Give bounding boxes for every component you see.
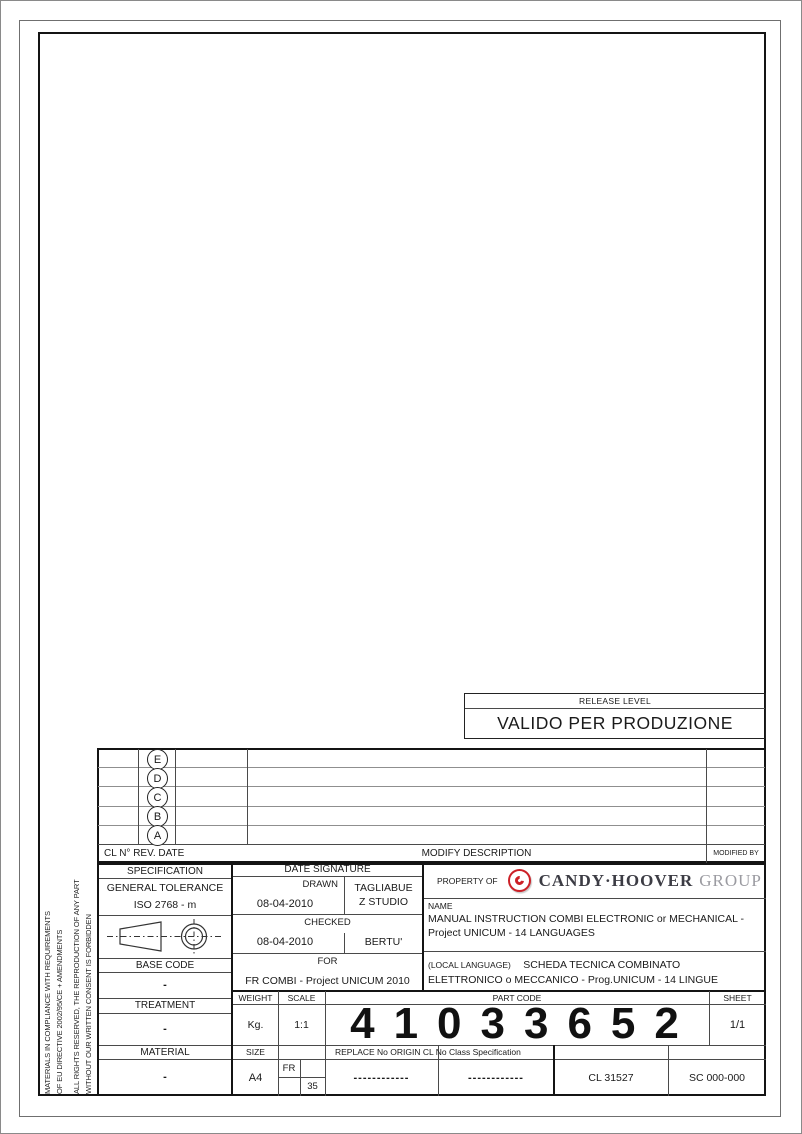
drawn-signature-line2: Z STUDIO — [359, 895, 408, 909]
compliance-line: MATERIALS IN COMPLIANCE WITH REQUIREMENT… — [42, 858, 54, 1094]
cl-class-value: CL 31527 — [554, 1059, 668, 1096]
sc-specification-value: SC 000-000 — [668, 1059, 766, 1096]
material-label: MATERIAL — [99, 1045, 231, 1059]
compliance-note: MATERIALS IN COMPLIANCE WITH REQUIREMENT… — [42, 858, 96, 1094]
revision-letter-c: C — [147, 787, 168, 808]
local-line1: SCHEDA TECNICA COMBINATO — [523, 959, 680, 971]
weight-value: Kg. — [233, 1004, 278, 1045]
compliance-line: WITHOUT OUR WRITTEN CONSENT IS FORBIDDEN — [83, 858, 95, 1094]
size-value: A4 — [233, 1059, 278, 1096]
for-label: FOR — [233, 955, 422, 968]
drawing-sheet: MATERIALS IN COMPLIANCE WITH REQUIREMENT… — [0, 0, 802, 1134]
revision-header-right: MODIFIED BY — [706, 844, 766, 863]
checked-signature: BERTU' — [345, 933, 422, 951]
size-label: SIZE — [233, 1045, 278, 1059]
name-cell: NAME MANUAL INSTRUCTION COMBI ELECTRONIC… — [424, 898, 764, 951]
drawn-signature: TAGLIABUE Z STUDIO — [345, 878, 422, 912]
revision-letter-b: B — [147, 806, 168, 827]
property-of-label: PROPERTY OF — [424, 876, 498, 886]
fr-label: FR — [278, 1059, 300, 1077]
replace-origin-label: REPLACE No ORIGIN CL No Class Specificat… — [335, 1045, 665, 1059]
base-code-label: BASE CODE — [99, 958, 231, 972]
replace-value: ------------ — [325, 1059, 438, 1096]
sheet-value: 1/1 — [709, 1004, 766, 1045]
scale-label: SCALE — [278, 991, 325, 1004]
fr-number: 35 — [300, 1077, 325, 1096]
date-signature-header: DATE SIGNATURE — [233, 863, 422, 876]
part-code-value: 41033652 — [325, 1003, 709, 1045]
revision-letter-e: E — [147, 749, 168, 770]
projection-symbol-cell — [99, 915, 231, 958]
origin-value: ------------ — [438, 1059, 554, 1096]
release-level-value: VALIDO PER PRODUZIONE — [464, 709, 766, 738]
property-row: PROPERTY OF CANDY·HOOVER GROUP — [424, 863, 764, 898]
general-tolerance-value: ISO 2768 - m — [134, 897, 196, 914]
scale-value: 1:1 — [278, 1004, 325, 1045]
name-line1: MANUAL INSTRUCTION COMBI ELECTRONIC or M… — [428, 913, 764, 927]
checked-date: 08-04-2010 — [235, 933, 335, 951]
sheet-label: SHEET — [709, 991, 766, 1004]
compliance-line: OF EU DIRECTIVE 2002/95/CE + AMENDMENTS — [54, 858, 66, 1094]
local-line2: ELETTRONICO o MECCANICO - Prog.UNICUM - … — [428, 973, 764, 988]
first-angle-projection-icon — [101, 916, 229, 957]
base-code-value: - — [99, 972, 231, 998]
release-level-label: RELEASE LEVEL — [464, 693, 766, 708]
revision-letter-d: D — [147, 768, 168, 789]
name-line2: Project UNICUM - 14 LANGUAGES — [428, 927, 764, 941]
drawn-date: 08-04-2010 — [235, 895, 335, 912]
general-tolerance-cell: GENERAL TOLERANCE ISO 2768 - m — [99, 878, 231, 915]
weight-label: WEIGHT — [233, 991, 278, 1004]
drawn-label: DRAWN — [233, 878, 340, 891]
specification-label: SPECIFICATION — [99, 865, 231, 878]
revision-header-left: CL N° REV. DATE — [104, 844, 247, 863]
candy-c-glyph — [513, 874, 526, 887]
brand-group: GROUP — [699, 871, 762, 891]
local-language-cell: (LOCAL LANGUAGE) SCHEDA TECNICA COMBINAT… — [424, 951, 764, 991]
name-label: NAME — [428, 901, 764, 911]
for-value: FR COMBI - Project UNICUM 2010 — [233, 972, 422, 989]
brand-candy-hoover: CANDY·HOOVER — [539, 871, 694, 891]
general-tolerance-label: GENERAL TOLERANCE — [107, 880, 224, 897]
local-language-label: (LOCAL LANGUAGE) — [428, 960, 511, 970]
drawn-signature-line1: TAGLIABUE — [354, 881, 412, 895]
treatment-value: - — [99, 1013, 231, 1045]
revision-letter-a: A — [147, 825, 168, 846]
checked-label: CHECKED — [233, 916, 422, 929]
material-value: - — [99, 1059, 231, 1095]
candy-c-icon — [508, 869, 531, 892]
treatment-label: TREATMENT — [99, 998, 231, 1013]
revision-header-center: MODIFY DESCRIPTION — [247, 844, 706, 863]
compliance-line: ALL RIGHTS RESERVED, THE REPRODUCTION OF… — [71, 858, 83, 1094]
